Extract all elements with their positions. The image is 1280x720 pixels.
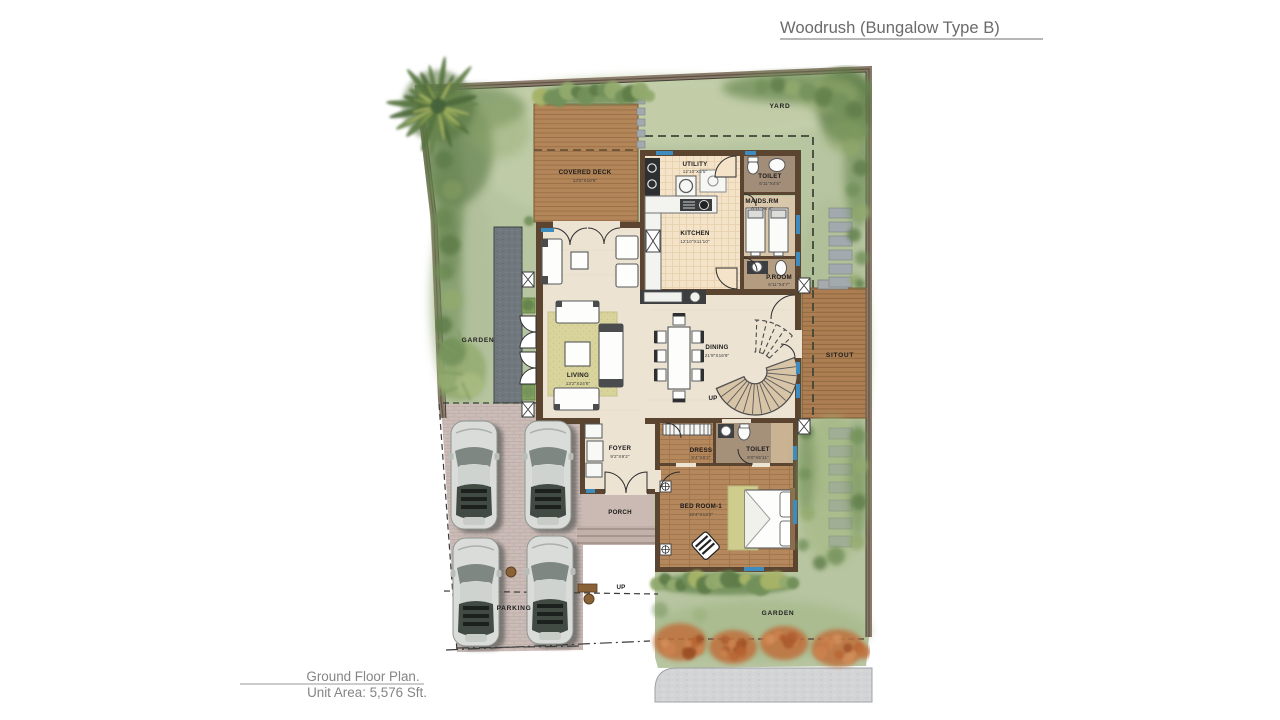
svg-text:6'11"X8'4": 6'11"X8'4" <box>751 206 773 211</box>
svg-text:Ground Floor Plan.: Ground Floor Plan. <box>306 669 419 684</box>
svg-text:16'4"X13'2": 16'4"X13'2" <box>689 512 714 517</box>
svg-text:KITCHEN: KITCHEN <box>680 230 710 237</box>
svg-text:5'4"X6'2": 5'4"X6'2" <box>691 455 710 460</box>
svg-text:Unit Area: 5,576 Sft.: Unit Area: 5,576 Sft. <box>307 685 427 700</box>
svg-text:P.ROOM: P.ROOM <box>766 274 792 281</box>
svg-text:9'0"X5'11": 9'0"X5'11" <box>747 455 769 460</box>
svg-text:TOILET: TOILET <box>758 173 781 180</box>
svg-text:UTILITY: UTILITY <box>682 161 708 168</box>
svg-text:6'11"X4'5": 6'11"X4'5" <box>759 181 781 186</box>
svg-text:13'2"X24'6": 13'2"X24'6" <box>566 381 591 386</box>
svg-text:SITOUT: SITOUT <box>826 352 854 359</box>
svg-text:GARDEN: GARDEN <box>462 337 495 344</box>
svg-text:PARKING: PARKING <box>497 605 532 612</box>
svg-text:UP: UP <box>616 584 625 591</box>
svg-text:9'2"X9'2": 9'2"X9'2" <box>610 454 629 459</box>
svg-text:Woodrush (Bungalow Type B): Woodrush (Bungalow Type B) <box>780 18 1000 37</box>
svg-text:12'10"X11'10": 12'10"X11'10" <box>680 239 710 244</box>
svg-text:MAIDS.RM: MAIDS.RM <box>745 198 778 205</box>
svg-text:GARDEN: GARDEN <box>762 610 795 617</box>
svg-text:12'10"X5'5": 12'10"X5'5" <box>683 169 708 174</box>
svg-text:BED ROOM-1: BED ROOM-1 <box>680 503 722 510</box>
svg-text:6'11"X4'7": 6'11"X4'7" <box>768 282 790 287</box>
svg-text:LIVING: LIVING <box>567 372 589 379</box>
svg-text:YARD: YARD <box>770 103 791 110</box>
svg-text:PORCH: PORCH <box>608 509 632 516</box>
svg-text:FOYER: FOYER <box>609 445 632 452</box>
svg-text:COVERED DECK: COVERED DECK <box>559 169 612 176</box>
svg-text:DRESS: DRESS <box>690 447 713 454</box>
svg-text:DINING: DINING <box>705 344 728 351</box>
svg-text:21'9"X16'9": 21'9"X16'9" <box>705 353 730 358</box>
svg-text:13'5"X10'6": 13'5"X10'6" <box>573 178 598 183</box>
svg-text:TOILET: TOILET <box>746 446 769 453</box>
svg-text:UP: UP <box>708 395 717 402</box>
